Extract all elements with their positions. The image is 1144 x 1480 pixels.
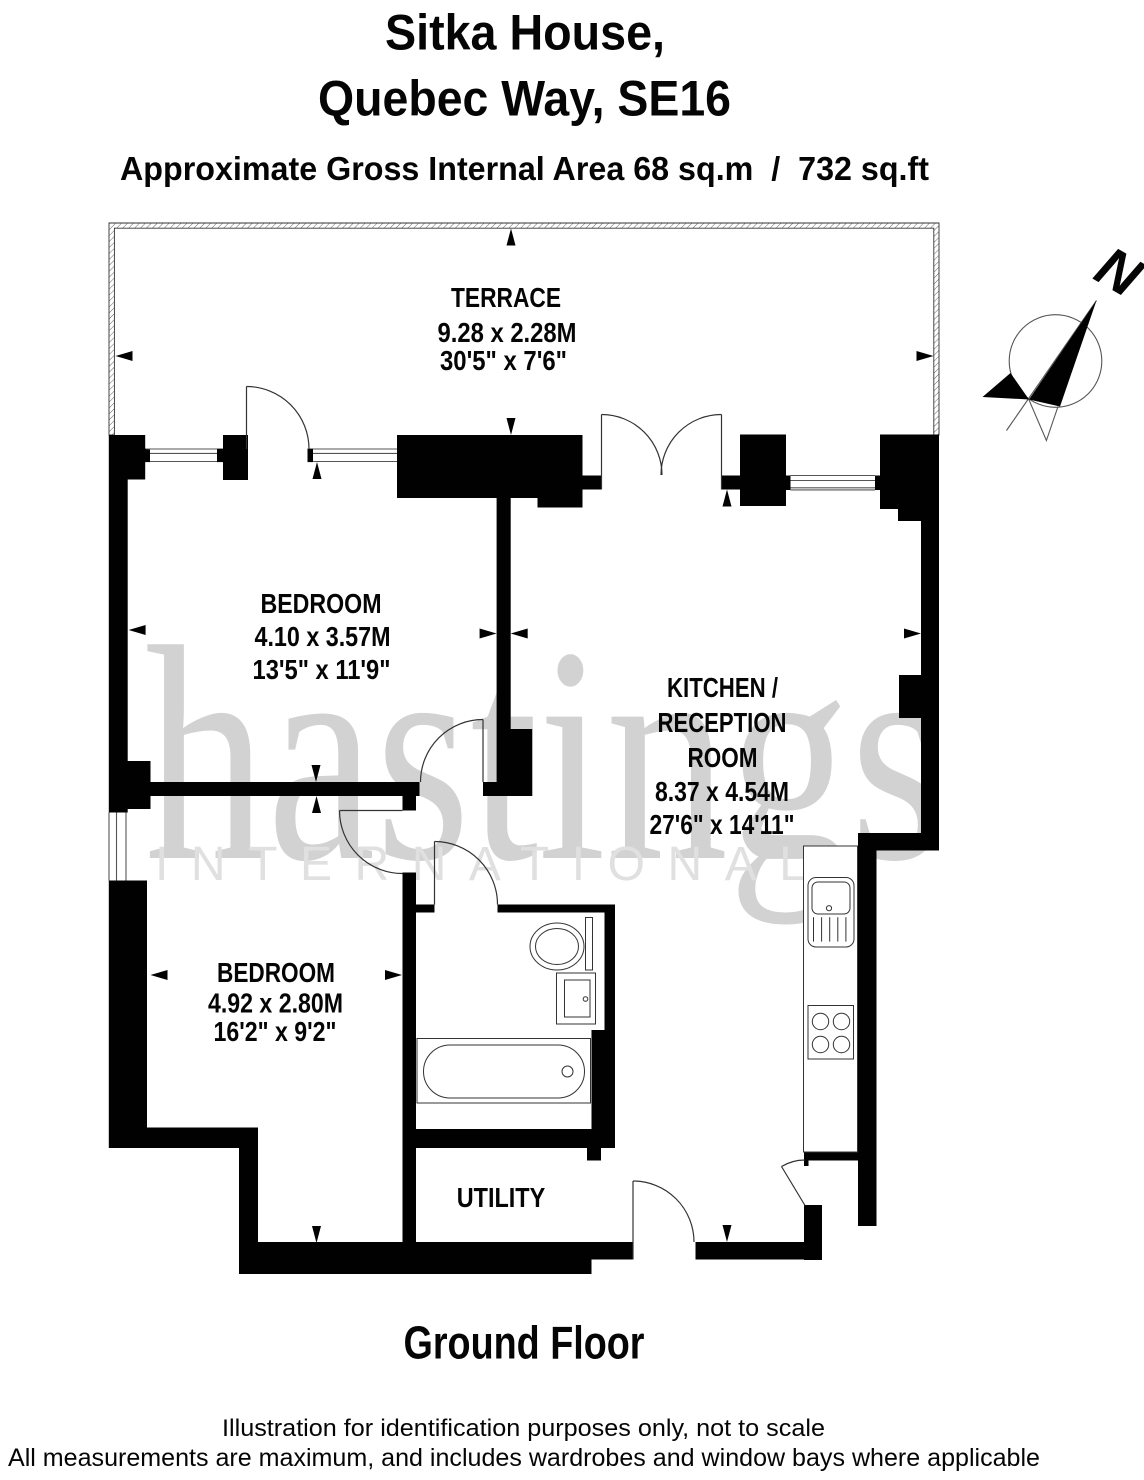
- svg-text:Quebec Way, SE16: Quebec Way, SE16: [318, 71, 731, 127]
- svg-text:TERRACE: TERRACE: [451, 282, 561, 313]
- svg-text:BEDROOM: BEDROOM: [261, 588, 382, 619]
- svg-text:8.37 x 4.54M: 8.37 x 4.54M: [655, 776, 789, 807]
- svg-text:16'2" x 9'2": 16'2" x 9'2": [214, 1016, 337, 1047]
- svg-text:Illustration for identificatio: Illustration for identification purposes…: [222, 1415, 825, 1442]
- svg-text:ROOM: ROOM: [688, 742, 758, 773]
- svg-text:All measurements are maximum,: All measurements are maximum, and includ…: [8, 1444, 1040, 1472]
- svg-text:UTILITY: UTILITY: [457, 1182, 546, 1213]
- svg-text:BEDROOM: BEDROOM: [217, 957, 335, 988]
- svg-text:27'6" x 14'11": 27'6" x 14'11": [650, 809, 795, 840]
- svg-text:4.92 x 2.80M: 4.92 x 2.80M: [208, 988, 343, 1019]
- svg-text:KITCHEN /: KITCHEN /: [667, 672, 778, 703]
- svg-text:N: N: [1086, 234, 1144, 310]
- svg-text:13'5" x 11'9": 13'5" x 11'9": [253, 654, 391, 685]
- svg-text:Sitka House,: Sitka House,: [385, 5, 665, 61]
- svg-text:30'5" x 7'6": 30'5" x 7'6": [440, 345, 567, 376]
- svg-text:4.10 x 3.57M: 4.10 x 3.57M: [255, 621, 391, 652]
- svg-text:RECEPTION: RECEPTION: [658, 707, 787, 738]
- svg-text:9.28 x 2.28M: 9.28 x 2.28M: [438, 317, 577, 348]
- svg-text:Ground Floor: Ground Floor: [404, 1317, 645, 1369]
- svg-text:Approximate Gross Internal Are: Approximate Gross Internal Area 68 sq.m …: [120, 150, 929, 187]
